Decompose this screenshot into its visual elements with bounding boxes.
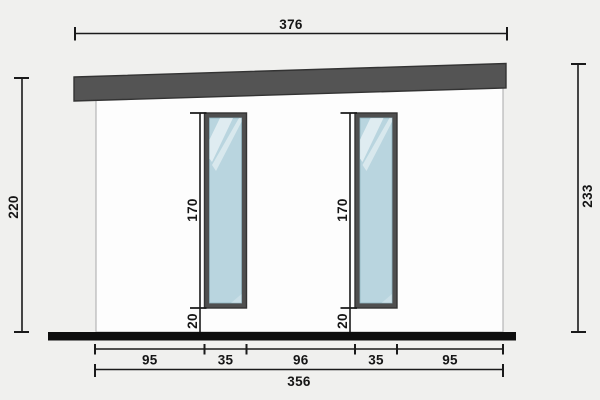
left-window-offset-label: 20 <box>185 313 200 329</box>
segment-label-4: 35 <box>368 353 384 368</box>
segment-label-1: 95 <box>142 353 158 368</box>
elevation-canvas: 376 220 233 170 20 170 <box>0 0 600 400</box>
top-width-label: 376 <box>279 17 303 32</box>
right-window <box>355 113 398 308</box>
elevation-diagram: 376 220 233 170 20 170 <box>0 0 600 400</box>
ground-line <box>48 332 516 341</box>
right-window-height-label: 170 <box>335 198 350 221</box>
left-window-height-label: 170 <box>185 198 200 221</box>
segment-label-3: 96 <box>293 353 309 368</box>
right-height-label: 233 <box>580 184 595 208</box>
segment-label-2: 35 <box>218 353 234 368</box>
left-window <box>204 113 247 308</box>
wall <box>96 87 503 333</box>
left-height-label: 220 <box>6 195 21 218</box>
segment-label-5: 95 <box>442 353 458 368</box>
bottom-total-label: 356 <box>287 374 311 389</box>
right-window-offset-label: 20 <box>335 313 350 329</box>
